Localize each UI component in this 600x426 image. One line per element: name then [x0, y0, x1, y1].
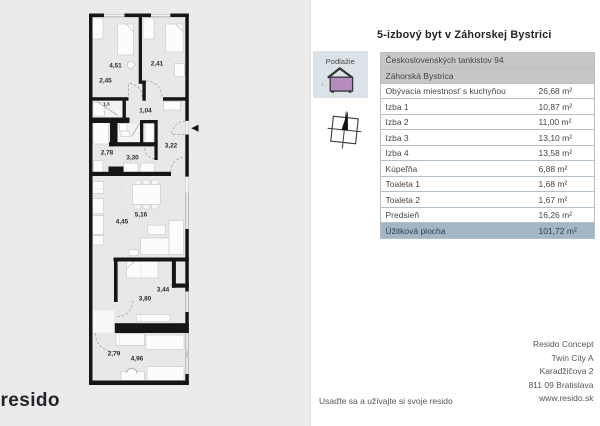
svg-text:2,41: 2,41: [151, 61, 164, 68]
svg-text:2,45: 2,45: [99, 78, 112, 85]
svg-text:1.: 1.: [321, 82, 325, 88]
svg-text:4,45: 4,45: [116, 219, 129, 226]
svg-text:2,78: 2,78: [101, 150, 114, 157]
svg-text:3,80: 3,80: [139, 296, 152, 303]
svg-text:3,22: 3,22: [165, 143, 178, 150]
svg-text:3,30: 3,30: [126, 155, 139, 162]
svg-text:5,16: 5,16: [135, 212, 148, 219]
svg-text:2,79: 2,79: [108, 351, 121, 358]
svg-text:4,51: 4,51: [109, 63, 122, 70]
svg-text:1,04: 1,04: [139, 108, 152, 115]
svg-text:3,44: 3,44: [157, 287, 170, 294]
svg-text:1,5: 1,5: [103, 101, 110, 106]
svg-text:4,96: 4,96: [131, 356, 144, 363]
